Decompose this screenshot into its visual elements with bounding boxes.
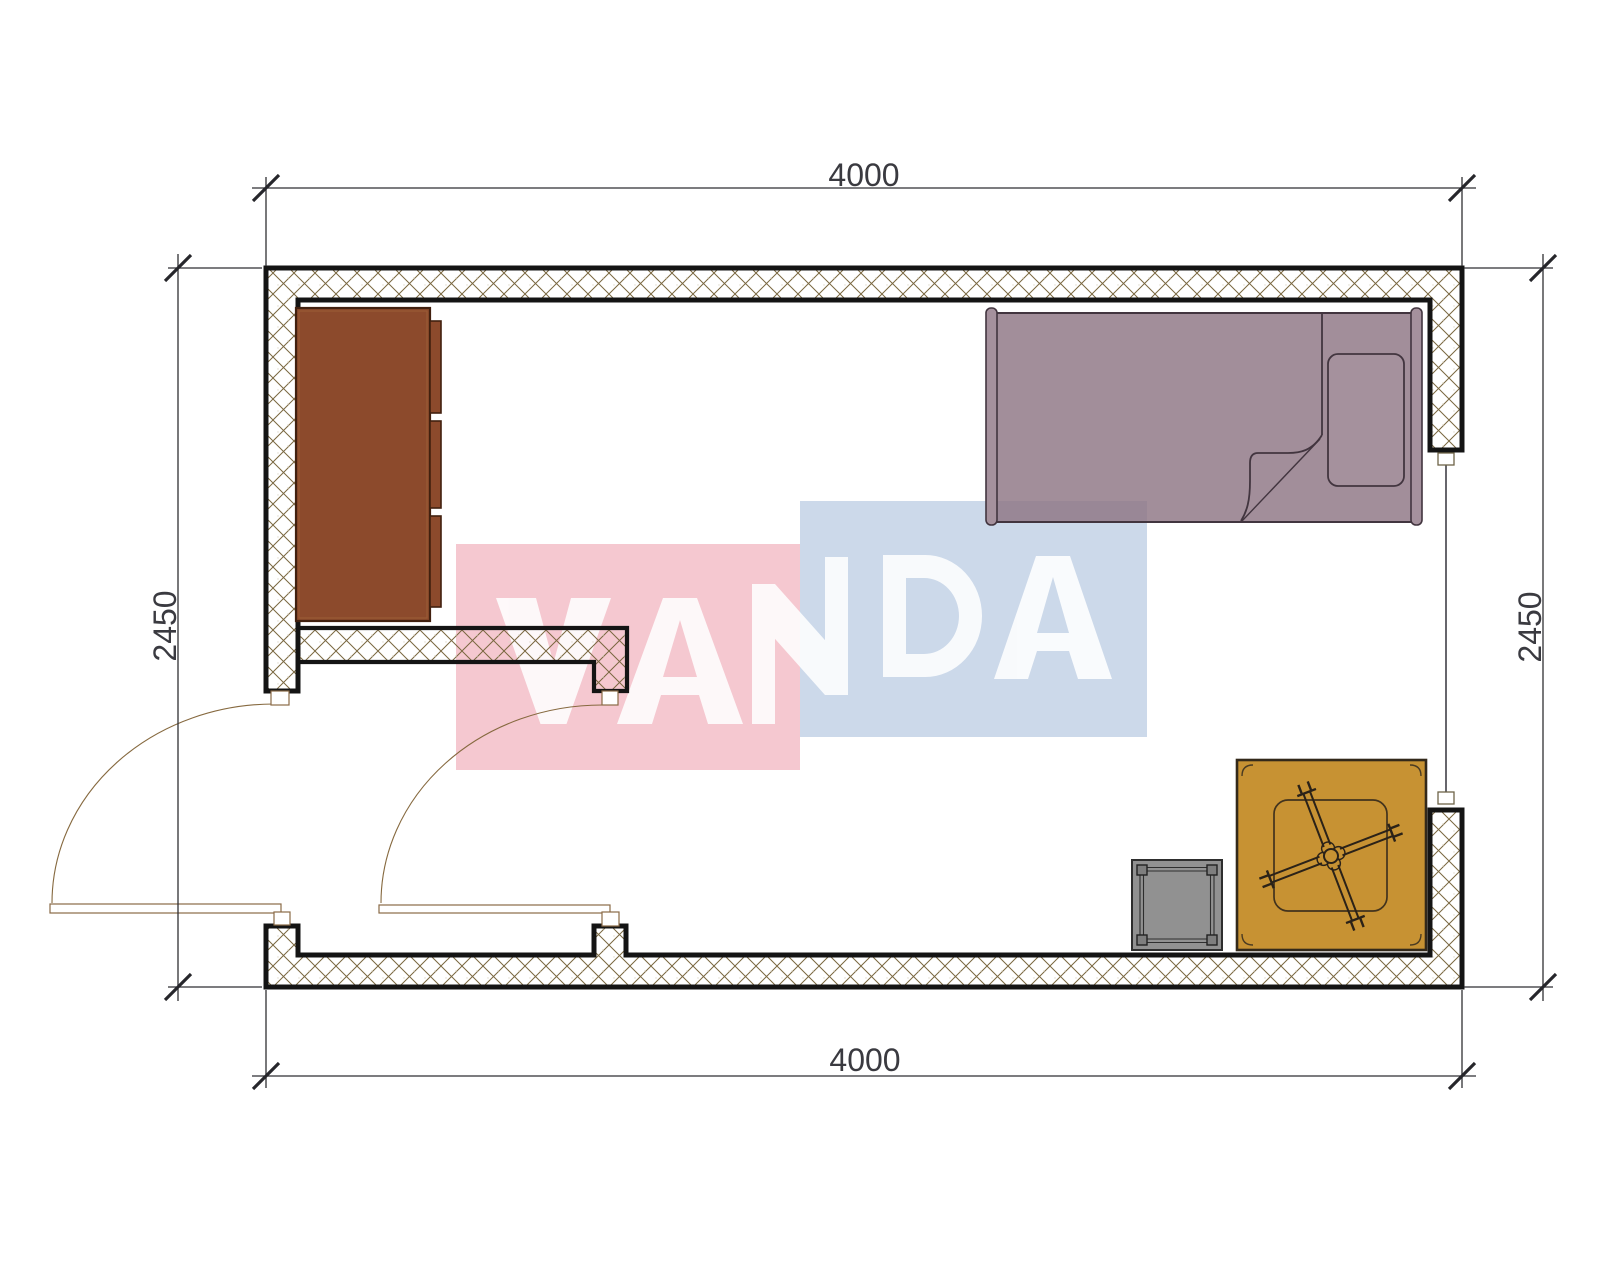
svg-text:2450: 2450 (147, 590, 183, 661)
svg-text:4000: 4000 (828, 157, 899, 193)
svg-text:2450: 2450 (1512, 591, 1548, 662)
svg-text:4000: 4000 (829, 1042, 900, 1078)
